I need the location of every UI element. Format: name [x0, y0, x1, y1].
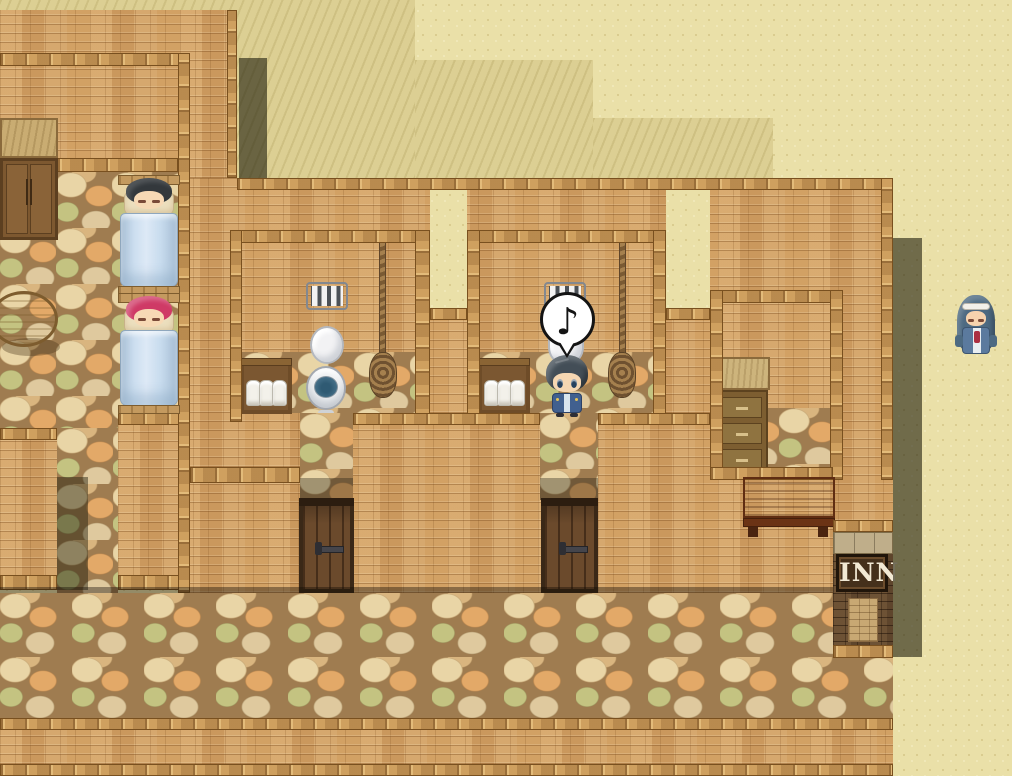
- stall-beam: [467, 230, 666, 243]
- toilet-paper-crate[interactable]: [240, 358, 292, 414]
- corridor-shade: [300, 478, 353, 500]
- wall-beam: [190, 467, 300, 483]
- desk-leg: [818, 527, 828, 537]
- sleeping-guest-pink-hair[interactable]: [124, 296, 174, 334]
- wardrobe-doors: [0, 158, 58, 240]
- wall-beam: [0, 53, 180, 66]
- npc-sleeve: [989, 335, 997, 347]
- stall-beam: [230, 230, 430, 243]
- npc-face: [966, 311, 986, 326]
- ledge-wall: [0, 730, 893, 764]
- stall-beam: [415, 230, 430, 422]
- open-gap: [666, 190, 710, 308]
- wall-beam: [353, 413, 540, 425]
- pillar-capstone: [833, 532, 893, 554]
- npc-tie: [974, 331, 980, 343]
- open-gap: [430, 190, 467, 308]
- npc-robe: [962, 327, 990, 354]
- ledge-beam: [0, 764, 893, 776]
- wardrobe[interactable]: [0, 118, 58, 240]
- wall-beam: [57, 158, 178, 172]
- speech-bubble-tail-fill: [560, 342, 574, 354]
- desk-edge: [743, 518, 835, 527]
- music-note-icon: ♪: [543, 297, 592, 346]
- stall-beam: [230, 230, 242, 422]
- room-beam: [710, 290, 723, 480]
- npc-sleeve: [955, 335, 963, 347]
- game-viewport: INN ♪: [0, 0, 1012, 776]
- speech-bubble: ♪: [540, 292, 595, 347]
- room-beam: [830, 290, 843, 480]
- wall-beam: [430, 308, 467, 320]
- stall-beam: [653, 230, 666, 422]
- street-path: [0, 593, 893, 718]
- bed-blanket[interactable]: [120, 330, 178, 406]
- npc-headband: [962, 303, 990, 310]
- room-beam: [710, 290, 843, 303]
- player-foot: [556, 413, 564, 417]
- toilet-paper-crate[interactable]: [478, 358, 530, 414]
- desk-top: [743, 477, 835, 518]
- wall-beam: [178, 53, 190, 593]
- barred-window: [306, 282, 348, 310]
- player-face: [553, 373, 581, 392]
- stall-beam: [467, 230, 480, 422]
- sleeping-guest-dark-hair[interactable]: [124, 178, 174, 216]
- inn-sign-text: INN: [839, 558, 899, 587]
- desk-leg: [748, 527, 758, 537]
- inn-door-left[interactable]: [299, 498, 354, 593]
- player-character[interactable]: [545, 355, 589, 417]
- bed-footboard: [118, 405, 180, 414]
- inn-door-right[interactable]: [541, 498, 598, 593]
- roof-edge-beam: [237, 178, 883, 190]
- sleeper-face: [134, 191, 164, 209]
- wall-block: [0, 440, 57, 577]
- sleeper-face: [134, 309, 164, 327]
- building-shadow-left: [239, 58, 267, 178]
- wall-block: [118, 425, 180, 577]
- rope-coil: [369, 352, 397, 398]
- desk[interactable]: [743, 477, 835, 527]
- toilet-water: [314, 376, 338, 398]
- wall-beam: [227, 10, 237, 178]
- wall-beam: [0, 428, 57, 440]
- building-shadow-right: [893, 238, 922, 657]
- rope-coil: [608, 352, 636, 398]
- corridor-shade: [540, 478, 598, 500]
- toilet-lid: [310, 326, 344, 364]
- corridor-wall-shadow: [57, 477, 88, 590]
- sand-tier: [415, 60, 593, 178]
- player-foot: [570, 413, 578, 417]
- wall-beam: [666, 308, 710, 320]
- wall-beam: [881, 178, 893, 480]
- wardrobe-top: [0, 118, 58, 158]
- pillar-beam: [833, 645, 893, 658]
- toilet[interactable]: [303, 326, 349, 418]
- pull-rope[interactable]: [619, 243, 626, 361]
- pillar-inlay: [848, 598, 878, 642]
- wall-beam: [598, 413, 710, 425]
- inn-sign[interactable]: INN: [836, 554, 888, 592]
- pull-rope[interactable]: [379, 243, 386, 361]
- player-body: [552, 393, 582, 413]
- bed-blanket[interactable]: [120, 213, 178, 287]
- pillar-beam: [833, 520, 893, 532]
- sand-tier: [593, 118, 773, 178]
- ledge-beam: [0, 718, 893, 730]
- npc-priestess[interactable]: [954, 291, 998, 358]
